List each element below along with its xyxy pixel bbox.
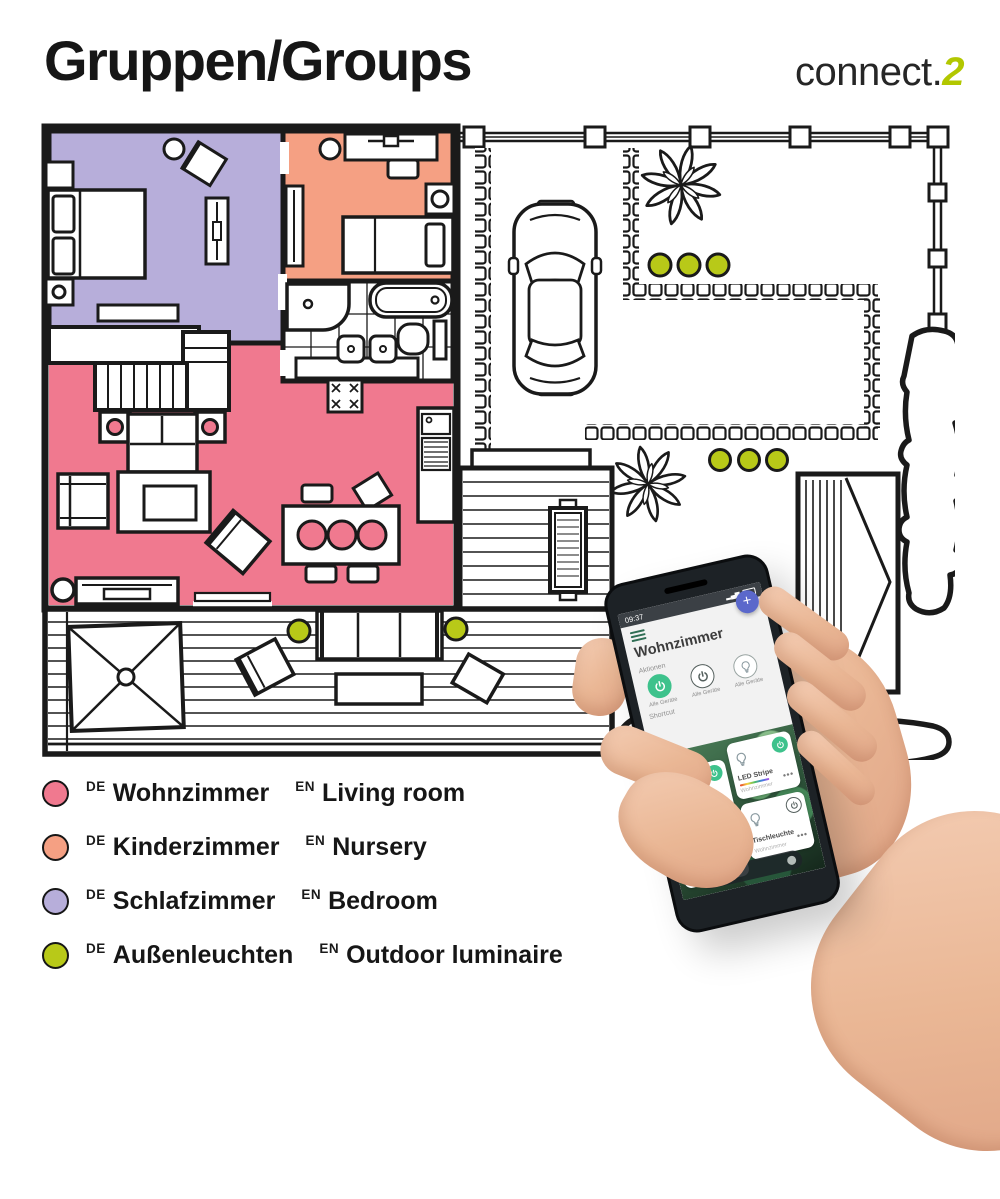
menu-icon[interactable] <box>629 627 647 644</box>
logo-text: connect. <box>795 50 942 94</box>
bulb-icon <box>732 750 750 768</box>
lang-de-label: DE <box>86 779 106 794</box>
lang-en-label: EN <box>305 833 325 848</box>
outdoor-light-dot <box>710 450 731 471</box>
all-devices-power-on-button[interactable]: Alle Geräte <box>640 671 680 710</box>
action-label: Alle Geräte <box>649 696 679 708</box>
outdoor-table <box>336 674 422 704</box>
outdoor-light-dot <box>707 254 729 276</box>
lang-en-label: EN <box>295 779 315 794</box>
brand-logo: connect.2 <box>795 50 964 95</box>
tile-led-stripe[interactable]: LED Stripe Wohnzimmer ••• <box>725 730 802 800</box>
lang-de-label: DE <box>86 887 106 902</box>
lang-de-label: DE <box>86 941 106 956</box>
logo-accent: 2 <box>942 50 964 94</box>
ellipsis-icon[interactable]: ••• <box>796 832 808 839</box>
legend-row-living: DE Wohnzimmer EN Living room <box>42 766 563 820</box>
room-name-en: Living room <box>322 779 465 808</box>
all-devices-power-off-button[interactable]: Alle Geräte <box>683 661 723 700</box>
outdoor-light-dot <box>445 618 467 640</box>
outdoor-light-dot <box>649 254 671 276</box>
room-name-de: Schlafzimmer <box>113 887 276 916</box>
legend-row-nursery: DE Kinderzimmer EN Nursery <box>42 820 563 874</box>
outdoor-light-dot <box>767 450 788 471</box>
outdoor-luminaire-swatch <box>42 942 69 969</box>
nursery-swatch <box>42 834 69 861</box>
bedroom-swatch <box>42 888 69 915</box>
room-name-de: Kinderzimmer <box>113 833 280 862</box>
plant-icon <box>633 137 730 234</box>
fence-top <box>455 127 948 147</box>
phone-speaker <box>664 579 708 595</box>
outdoor-light-dot <box>288 620 310 642</box>
legend-row-bedroom: DE Schlafzimmer EN Bedroom <box>42 874 563 928</box>
page-title: Gruppen/Groups <box>44 28 471 93</box>
side-deck <box>460 450 612 609</box>
outdoor-light-dot <box>678 254 700 276</box>
ellipsis-icon[interactable]: ••• <box>782 771 794 778</box>
action-label: Alle Geräte <box>691 687 721 699</box>
action-label: Alle Geräte <box>734 677 764 689</box>
power-icon[interactable] <box>770 735 789 754</box>
parasol-icon <box>68 623 184 731</box>
legend-row-outdoor: DE Außenleuchten EN Outdoor luminaire <box>42 928 563 982</box>
room-name-de: Wohnzimmer <box>113 779 270 808</box>
room-name-de: Außenleuchten <box>113 941 294 970</box>
outdoor-sofa <box>317 611 442 659</box>
legend: DE Wohnzimmer EN Living room DE Kinderzi… <box>42 766 563 982</box>
fence-right <box>929 147 946 331</box>
lang-de-label: DE <box>86 833 106 848</box>
room-name-en: Nursery <box>332 833 427 862</box>
living-room-swatch <box>42 780 69 807</box>
lang-en-label: EN <box>319 941 339 956</box>
pill-dot <box>786 855 797 866</box>
power-icon[interactable] <box>784 795 803 814</box>
room-name-en: Bedroom <box>328 887 438 916</box>
tile-name: Tischleuchte <box>752 829 795 845</box>
outdoor-light-dot <box>739 450 760 471</box>
plant-icon <box>603 439 693 529</box>
room-name-en: Outdoor luminaire <box>346 941 563 970</box>
lang-en-label: EN <box>301 887 321 902</box>
all-devices-bulb-button[interactable]: Alle Geräte <box>726 651 766 690</box>
terrace <box>45 609 612 754</box>
car-icon <box>509 201 601 395</box>
